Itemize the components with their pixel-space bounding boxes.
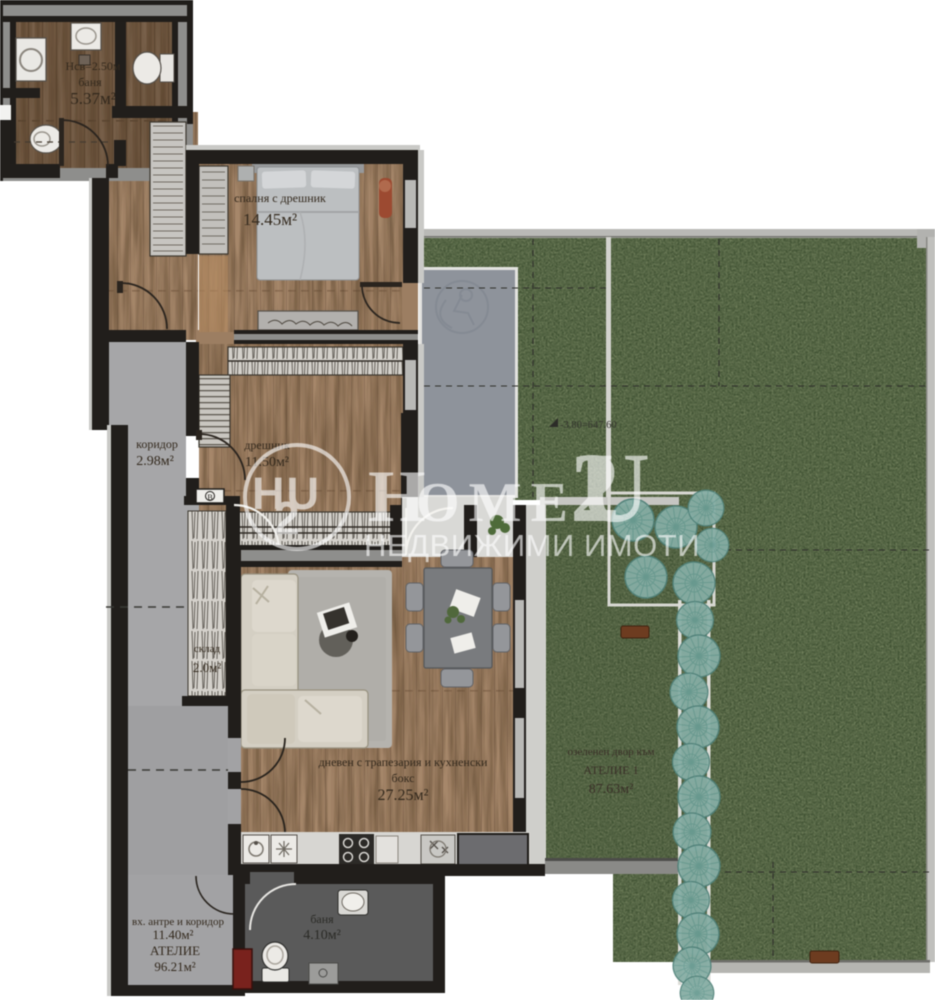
svg-text:коридор: коридор: [136, 437, 178, 451]
svg-text:96.21м²: 96.21м²: [154, 959, 195, 974]
svg-text:спалня с дрешник: спалня с дрешник: [234, 191, 326, 205]
svg-text:озеленен двор към: озеленен двор към: [568, 746, 655, 758]
svg-text:дневен с трапезария и кухненск: дневен с трапезария и кухненски: [319, 755, 488, 769]
svg-text:27.25м²: 27.25м²: [378, 787, 429, 804]
svg-text:14.45м²: 14.45м²: [243, 210, 297, 229]
svg-text:-3.80=647.60: -3.80=647.60: [560, 420, 617, 431]
svg-text:2U: 2U: [570, 432, 650, 543]
svg-text:бокс: бокс: [392, 771, 415, 785]
svg-text:2.0м²: 2.0м²: [193, 660, 221, 675]
svg-text:баня: баня: [310, 912, 334, 926]
svg-text:OME: OME: [416, 472, 568, 534]
svg-text:Hсв=2.50м: Hсв=2.50м: [65, 59, 120, 73]
svg-text:87.63м²: 87.63м²: [589, 782, 634, 797]
svg-text:2.98м²: 2.98м²: [136, 454, 174, 469]
svg-text:НЕДВИЖИМИ ИМОТИ: НЕДВИЖИМИ ИМОТИ: [364, 528, 702, 563]
svg-text:АТЕЛИЕ 1: АТЕЛИЕ 1: [583, 763, 638, 777]
svg-text:2: 2: [274, 492, 300, 544]
svg-text:АТЕЛИЕ: АТЕЛИЕ: [150, 943, 200, 958]
svg-text:баня: баня: [78, 75, 102, 89]
svg-text:4.10м²: 4.10м²: [303, 928, 341, 943]
svg-text:11.40м²: 11.40м²: [153, 927, 194, 942]
svg-text:склад: склад: [194, 643, 221, 655]
svg-text:B: B: [207, 493, 212, 502]
svg-text:5.37м²: 5.37м²: [70, 89, 116, 108]
